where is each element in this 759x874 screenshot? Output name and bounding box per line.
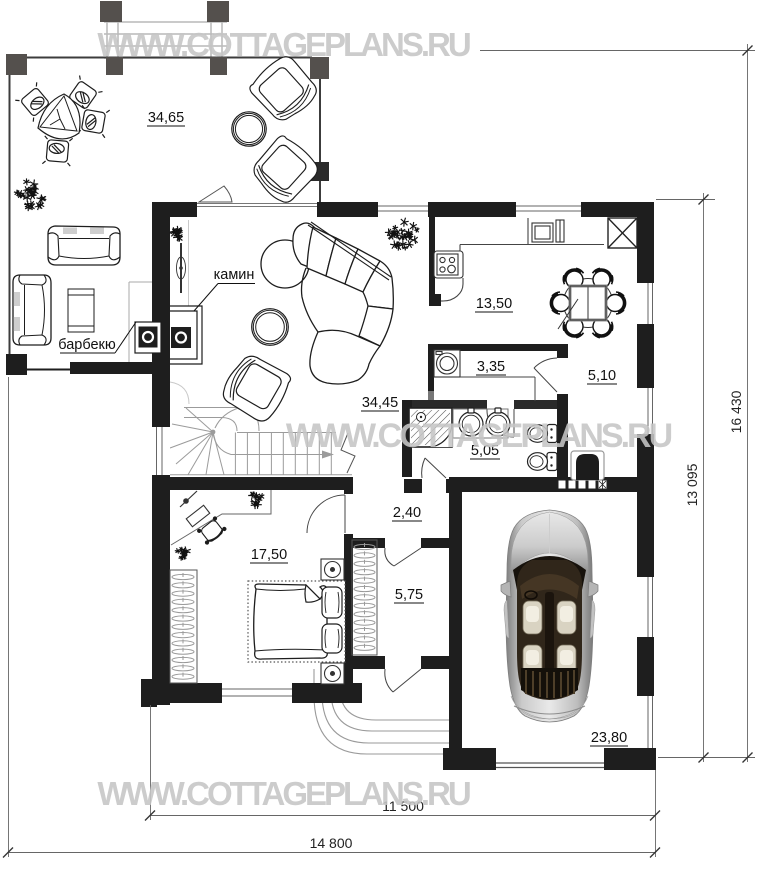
svg-text:34,45: 34,45 — [362, 395, 398, 411]
svg-text:14 800: 14 800 — [310, 835, 353, 851]
svg-text:34,65: 34,65 — [148, 110, 184, 126]
svg-text:WWW.COTTAGEPLANS.RU: WWW.COTTAGEPLANS.RU — [97, 775, 470, 812]
svg-text:камин: камин — [214, 267, 255, 283]
svg-text:3,35: 3,35 — [477, 359, 505, 375]
svg-text:барбекю: барбекю — [58, 337, 116, 353]
svg-text:WWW.COTTAGEPLANS.RU: WWW.COTTAGEPLANS.RU — [286, 417, 672, 455]
svg-text:WWW.COTTAGEPLANS.RU: WWW.COTTAGEPLANS.RU — [97, 26, 470, 63]
svg-text:23,80: 23,80 — [591, 730, 627, 746]
svg-text:16 430: 16 430 — [728, 390, 744, 433]
svg-text:13,50: 13,50 — [476, 296, 512, 312]
svg-text:5,75: 5,75 — [395, 587, 423, 603]
svg-text:17,50: 17,50 — [251, 547, 287, 563]
svg-text:5,10: 5,10 — [588, 368, 616, 384]
svg-text:2,40: 2,40 — [393, 505, 421, 521]
svg-text:13 095: 13 095 — [684, 463, 700, 506]
